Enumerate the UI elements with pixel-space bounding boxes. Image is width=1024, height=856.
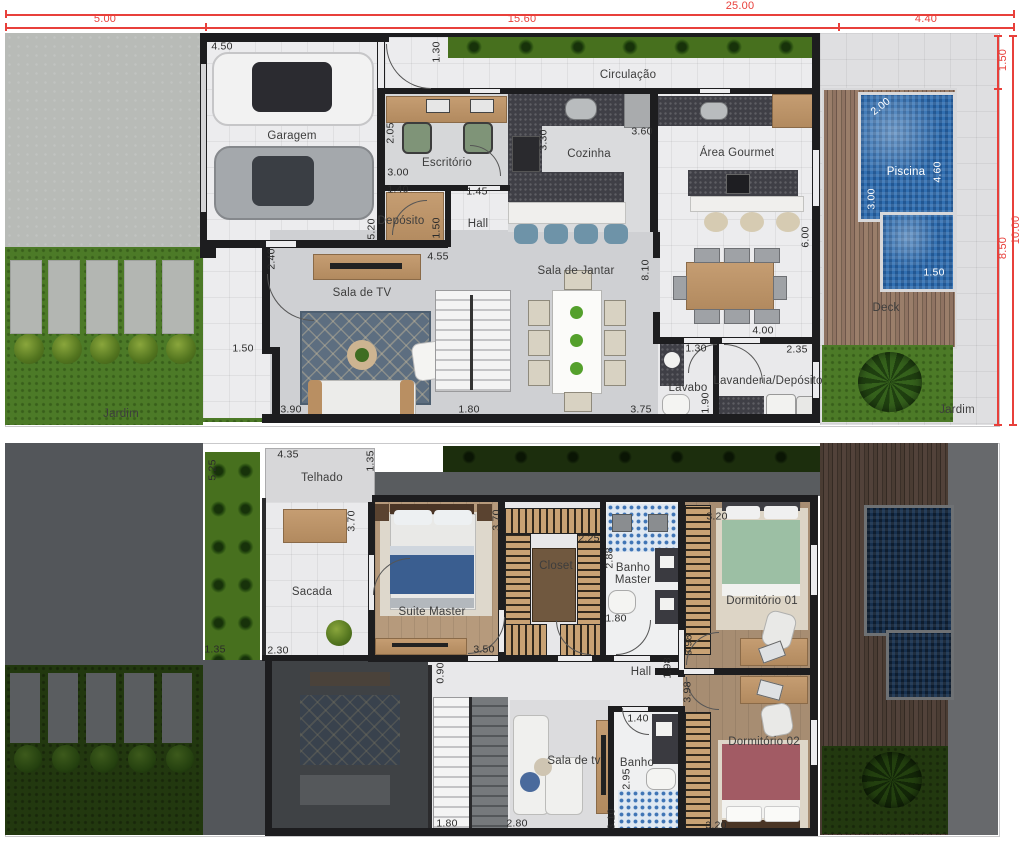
door-opening-bedroom2 [684,669,714,674]
garden-slab [86,260,118,334]
bedroom2-wardrobe [685,712,711,832]
dim-label-1-50: 1.50 [431,217,442,238]
room-label-telhado: Telhado [301,472,343,484]
master-bath-fixture [660,556,674,568]
door-opening-gourmet-deck [813,150,819,206]
window-bedroom2 [811,720,817,765]
stairs-rail [470,295,473,390]
office-chair [402,122,432,154]
master-bath-fixture [660,598,674,610]
tv-screen [330,263,402,269]
dim-label-2-80: 2.80 [506,818,527,829]
dim-label-6-00: 6.00 [800,226,811,247]
gourmet-chair [694,309,720,324]
master-bath-sink [648,514,668,532]
wall-garage-bottom [203,240,448,248]
room-label-jardim: Jardim [103,408,139,420]
bar-stool [604,224,628,244]
dining-chair [604,330,626,356]
dining-chair [604,360,626,386]
pool-lower [880,212,956,292]
gourmet-chair [724,248,750,263]
room-label-sala-de-tv: Sala de tv [547,755,600,767]
kitchen-stove [512,136,540,172]
dim-label-3-98: 3.98 [682,681,693,702]
side-path-dimmed [203,660,265,835]
dining-plant [570,334,583,347]
door-opening-balcony [369,555,374,610]
stairs-upper-rail [469,697,472,828]
office-monitor [470,99,494,113]
bar-stool [544,224,568,244]
car-grey-glass [252,156,314,206]
gourmet-island-counter [690,196,804,212]
suite-dresser-tv [392,643,448,647]
dim-tick [1013,10,1015,18]
dim-line-top-segments [5,27,1014,29]
garden-slab-dimmed [10,673,40,743]
closet-wardrobe-bottom-left [505,624,547,656]
dim-label-3-50: 3.50 [473,644,494,655]
dim-label-4-35: 4.35 [277,449,298,460]
bedroom2-duvet [722,744,800,808]
master-bath-sink [612,514,632,532]
garden-slab [124,260,156,334]
dim-label-1-50: 1.50 [998,49,1010,71]
garden-bush-dimmed [52,745,80,773]
void-stair-edge [428,665,432,828]
dim-label-3-70: 3.70 [491,509,502,530]
pool-main-dimmed [864,505,954,636]
dim-label-8-50: 8.50 [998,237,1010,259]
dim-label-8-10: 8.10 [640,259,651,280]
dim-tick [994,88,1002,90]
door-opening-suite [468,656,498,661]
dim-label-2-25: 2.25 [578,533,599,544]
vertical-garden [205,452,260,660]
bedroom1-wardrobe [685,505,711,655]
dim-label-1-50: 1.50 [923,267,944,278]
driveway-dimmed [5,443,203,665]
room-label-jardim: Jardim [939,404,975,416]
dim-label-1-80: 1.80 [458,404,479,415]
dim-label-3-60: 3.60 [631,126,652,137]
dim-label-2-35: 2.35 [786,344,807,355]
floor-plan-canvas: 25.005.0015.604.401.508.5010.00GaragemCi… [0,0,1024,856]
gourmet-board [772,94,814,128]
dim-label-1-90: 1.90 [700,392,711,413]
gourmet-chair [754,309,780,324]
window-office [470,89,500,93]
dim-tick [1009,35,1017,37]
dim-label-5-00: 5.00 [94,14,116,26]
dim-label-15-60: 15.60 [508,14,537,26]
wall-dining-gourmet-b [653,312,660,340]
garden-slab-dimmed [162,673,192,743]
garden-slab [48,260,80,334]
wall-bottom-main [262,414,820,423]
room-label-sala-de-jantar: Sala de Jantar [538,265,615,277]
dim-label-1-80: 1.80 [605,613,626,624]
room-label-closet: Closet [539,560,573,572]
circulation-dimmed [372,472,820,496]
balcony-rail-left [262,498,266,660]
room-label-rea-gourmet: Área Gourmet [700,147,775,159]
dim-label-4-00: 4.00 [752,325,773,336]
room-label-circula-o: Circulação [600,69,656,81]
dim-label-1-30: 1.30 [685,343,706,354]
coffee-table-plant [355,348,369,362]
door-opening-master-bath [614,656,650,661]
garden-bush-dimmed [128,745,156,773]
garden-slab-dimmed [48,673,78,743]
closet-wardrobe-left [505,534,531,626]
door-opening-laundry [722,338,760,343]
garden-bush-dimmed [90,745,118,773]
dim-label-5-20: 5.20 [366,218,377,239]
room-label-sala-de-tv: Sala de TV [333,287,392,299]
void-sofa-dimmed [300,775,390,805]
suite-pillow [434,510,472,525]
room-label-dep-sito: Depósito [378,215,425,227]
door-opening-garage-tv [266,241,296,247]
void-console-dimmed [310,672,390,686]
dim-label-3-90: 3.90 [280,404,301,415]
dim-label-0-90: 0.90 [435,662,446,683]
dim-tick [1009,424,1017,426]
wall-dining-gourmet-a [653,232,660,258]
bedroom1-pillow [726,506,760,519]
dining-plant [570,362,583,375]
dim-label-1-80: 1.80 [436,818,457,829]
dim-label-3-30: 3.30 [538,129,549,150]
upper-pouf-blue [520,772,540,792]
room-label-garagem: Garagem [267,130,316,142]
dining-chair [528,330,550,356]
dim-tick [1013,23,1015,31]
garage-door [201,64,206,212]
garden-bush [166,334,196,364]
dim-line-right-inner [997,35,999,425]
dim-tick [838,23,840,31]
dim-tick [994,35,1002,37]
garden-bush [128,334,158,364]
lavabo-sink [664,352,680,368]
dim-label-1-35: 1.35 [204,644,225,655]
dim-label-4-50: 4.50 [211,41,232,52]
dim-label-2-95: 2.95 [621,768,632,789]
palm-tree [858,352,922,412]
wall-closet-bath [600,502,606,658]
wall-front-top [389,33,820,37]
wall-kitchen-right [650,92,658,232]
dim-label-4-55: 4.55 [427,251,448,262]
laundry-counter [716,396,764,416]
wall-tv-left-lower [272,352,280,418]
bedroom1-pillow [764,506,798,519]
dim-label-1-50: 1.50 [232,343,253,354]
room-label-piscina: Piscina [887,166,925,178]
driveway [5,33,203,247]
entry-hedge-dimmed [443,446,820,472]
garden-slab-dimmed [86,673,116,743]
dim-label-1-35: 1.35 [365,450,376,471]
bedroom1-duvet [722,520,800,592]
stairs-ground [435,290,511,392]
bath2-sink [656,722,672,736]
dim-label-1-98: 1.98 [662,657,673,678]
room-label-suite-master: Suite Master [399,606,466,618]
gourmet-chair [754,248,780,263]
dim-label-2-05: 2.05 [385,122,396,143]
room-label-deck: Deck [872,302,899,314]
bath2-toilet [646,768,676,790]
void-rug-dimmed [300,695,400,765]
dim-label-3-00: 3.00 [387,167,408,178]
dining-chair [528,300,550,326]
window-gourmet [700,89,730,93]
bedroom2-pillow [726,806,762,822]
dim-label-1-30: 1.30 [431,41,442,62]
gourmet-chair [724,309,750,324]
dim-label-3-10: 3.10 [606,808,617,829]
terrain-right-dimmed [948,443,998,835]
dim-tick [994,424,1002,426]
bedroom2-pillow [764,806,800,822]
garden-slab [10,260,42,334]
bar-stool [514,224,538,244]
dim-label-1-40: 1.40 [387,184,408,195]
stairs-upper-down [471,697,508,828]
closet-wardrobe-top [505,508,602,534]
wall-storage-hall [445,191,451,247]
pool-lower-dimmed [886,630,954,700]
suite-blanket-fold [390,546,474,555]
gourmet-stool [776,212,800,232]
master-bath-toilet [608,590,636,614]
palm-tree-dimmed [862,752,922,808]
dim-label-2-88: 2.88 [604,547,615,568]
dim-label-1-40: 1.40 [627,713,648,724]
room-label-hall: Hall [468,218,489,230]
dim-label-3-98: 3.98 [683,634,694,655]
balcony-bench [283,509,347,543]
room-label-cozinha: Cozinha [567,148,611,160]
wall-right-main [812,37,820,418]
gourmet-sink [700,102,728,120]
wall-upper-left-lower [265,660,272,835]
room-label-lavanderia-dep-sito: Lavanderia/Depósito [713,375,822,387]
room-label-sacada: Sacada [292,586,332,598]
dim-label-3-20: 3.20 [705,820,726,831]
dim-label-3-70: 3.70 [346,510,357,531]
garden-bush-dimmed [166,745,194,773]
kitchen-sink [565,98,597,120]
gourmet-table [686,262,774,310]
dim-label-3-00: 3.00 [866,188,877,209]
garden-bush [52,334,82,364]
stairs-upper-up [433,697,473,830]
dim-label-5-25: 5.25 [207,459,218,480]
room-label-hall: Hall [631,666,652,678]
dim-label-2-40: 2.40 [266,248,277,269]
wall-upper-top [372,495,818,502]
garden-bush [90,334,120,364]
gourmet-stool [740,212,764,232]
dim-label-3-75: 3.75 [630,404,651,415]
upper-tv-screen [601,735,606,795]
bar-stool [574,224,598,244]
door-opening-entry [378,42,384,88]
dim-label-2-30: 2.30 [267,645,288,656]
dim-tick [5,23,7,31]
door-opening-closet-hall [558,656,592,661]
room-label-banho: Banho [620,757,654,769]
bath2-mosaic [618,790,678,832]
gourmet-chair [694,248,720,263]
dim-label-25-00: 25.00 [726,1,755,13]
dim-label-4-40: 4.40 [915,14,937,26]
room-label-dormit-rio-02: Dormitório 02 [728,736,800,748]
gourmet-stool [704,212,728,232]
suite-pillow [394,510,432,525]
wall-bath2-bedroom2 [678,706,685,835]
dim-tick [5,10,7,18]
kitchen-bar-counter [508,202,626,224]
garden-slab [162,260,194,334]
wall-upper-bottom [265,828,818,836]
room-label-dormit-rio-01: Dormitório 01 [726,595,798,607]
dining-chair [564,392,592,412]
toilet [662,394,690,416]
dim-label-3-20: 3.20 [706,511,727,522]
window-bedroom1 [811,545,817,595]
dim-tick [205,23,207,31]
gourmet-chair [673,276,687,300]
wall-rooms-top [385,88,820,94]
bedroom2-chair [759,702,794,739]
gourmet-cooktop [726,174,750,194]
garden-bush-dimmed [14,745,42,773]
suite-nightstand [374,504,389,521]
balcony-plant [326,620,352,646]
dining-chair [604,300,626,326]
dim-label-10-00: 10.00 [1011,216,1023,245]
garden-slab-dimmed [124,673,154,743]
dim-label-4-60: 4.60 [932,161,943,182]
kitchen-counter-bottom [508,172,624,204]
garden-bush [14,334,44,364]
wall-pillar [200,244,216,258]
office-monitor [426,99,450,113]
entry-hedge [448,36,820,58]
dining-plant [570,306,583,319]
room-label-escrit-rio: Escritório [422,157,472,169]
dim-label-1-45: 1.45 [466,186,487,197]
gourmet-chair [773,276,787,300]
car-white-roof [252,62,332,112]
dining-chair [528,360,550,386]
